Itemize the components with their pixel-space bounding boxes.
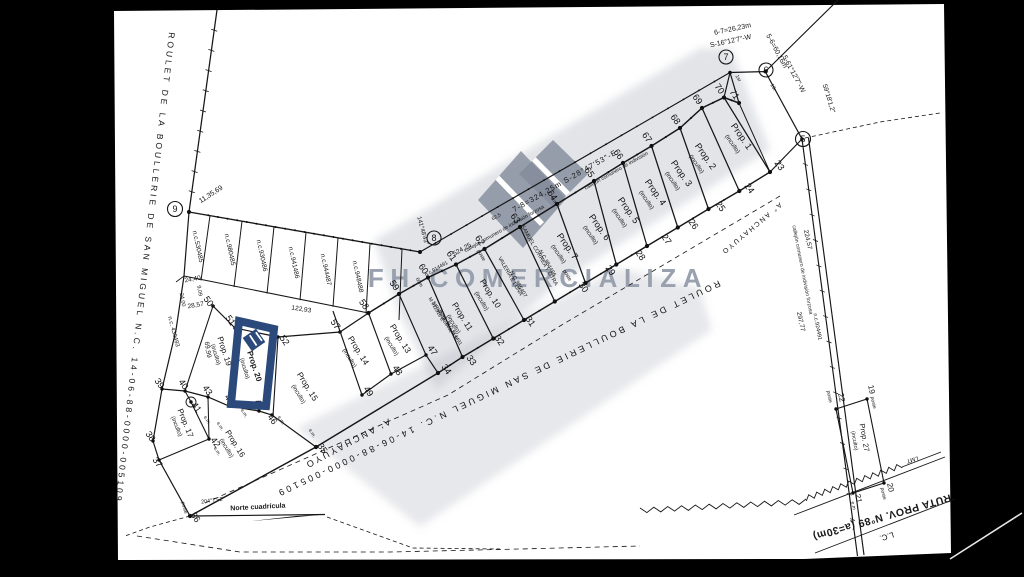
svg-text:8: 8 [431, 233, 436, 243]
svg-text:9: 9 [172, 204, 177, 214]
svg-text:7: 7 [723, 52, 728, 62]
